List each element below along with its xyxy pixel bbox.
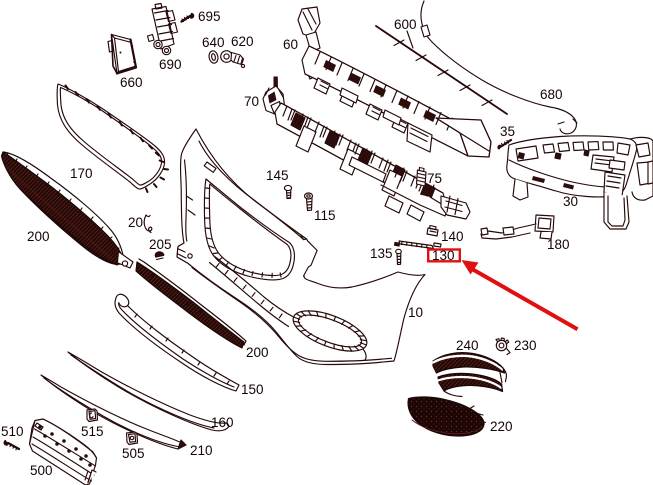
svg-text:140: 140 bbox=[441, 229, 464, 244]
svg-text:505: 505 bbox=[122, 446, 145, 461]
svg-text:230: 230 bbox=[514, 338, 537, 353]
svg-text:20: 20 bbox=[128, 215, 143, 230]
svg-text:210: 210 bbox=[190, 443, 213, 458]
svg-text:620: 620 bbox=[231, 34, 254, 49]
svg-text:510: 510 bbox=[1, 424, 24, 439]
svg-text:695: 695 bbox=[198, 9, 221, 24]
svg-text:500: 500 bbox=[30, 463, 53, 478]
svg-text:200: 200 bbox=[27, 229, 50, 244]
svg-text:640: 640 bbox=[202, 35, 225, 50]
svg-text:60: 60 bbox=[283, 37, 298, 52]
svg-text:115: 115 bbox=[314, 208, 336, 223]
svg-text:35: 35 bbox=[500, 124, 515, 139]
svg-text:660: 660 bbox=[120, 75, 143, 90]
svg-text:515: 515 bbox=[81, 424, 104, 439]
svg-text:30: 30 bbox=[563, 194, 578, 209]
svg-text:180: 180 bbox=[547, 237, 570, 252]
svg-text:135: 135 bbox=[370, 246, 393, 261]
svg-text:200: 200 bbox=[246, 345, 269, 360]
svg-text:205: 205 bbox=[149, 237, 172, 252]
svg-text:690: 690 bbox=[159, 57, 182, 72]
svg-text:145: 145 bbox=[266, 168, 289, 183]
svg-text:170: 170 bbox=[70, 166, 93, 181]
svg-text:10: 10 bbox=[408, 305, 423, 320]
svg-text:600: 600 bbox=[394, 17, 417, 32]
svg-text:75: 75 bbox=[427, 171, 442, 186]
svg-text:680: 680 bbox=[540, 87, 563, 102]
svg-text:240: 240 bbox=[456, 338, 479, 353]
svg-text:70: 70 bbox=[244, 94, 259, 109]
svg-text:150: 150 bbox=[241, 382, 264, 397]
svg-text:220: 220 bbox=[490, 419, 513, 434]
svg-text:160: 160 bbox=[211, 415, 234, 430]
